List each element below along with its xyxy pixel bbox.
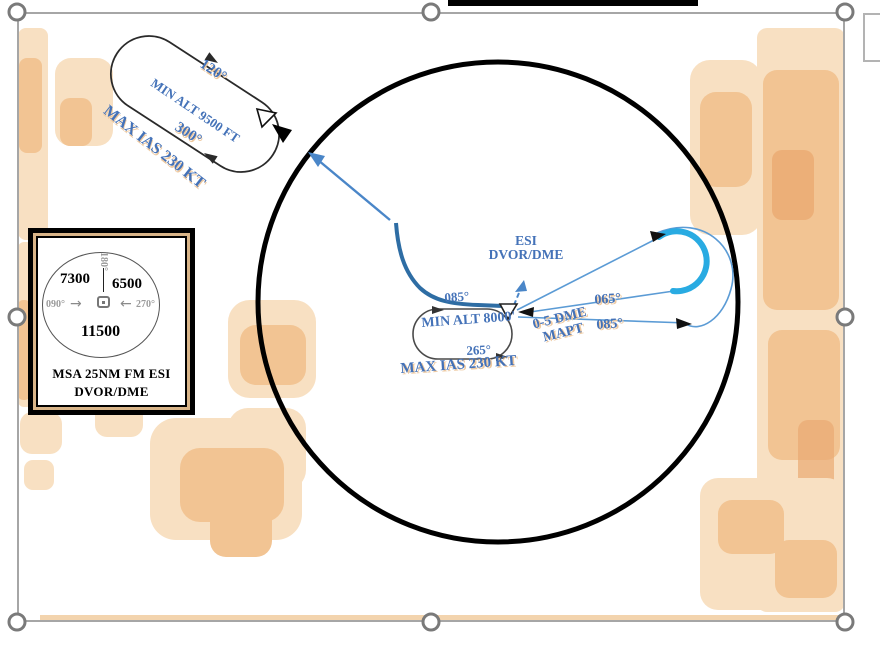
selection-handle-right-middle[interactable] — [836, 308, 855, 327]
msa-inner-frame: 180° 7300 6500 090° → ← 270° 11500 MSA 2… — [36, 236, 187, 407]
approach-course-label: 085° — [444, 289, 470, 304]
missed-approach-path — [308, 152, 503, 306]
selection-handle-top-right[interactable] — [836, 3, 855, 22]
msa-dme-symbol-icon — [97, 296, 110, 308]
fix-name-label: ESI DVOR/DME — [482, 234, 570, 262]
msa-bearing-left: 090° — [46, 299, 65, 310]
msa-sector-nw-altitude: 7300 — [60, 271, 90, 288]
top-edge-bar — [448, 0, 698, 6]
teardrop-turn-highlight — [659, 231, 707, 291]
fix-name-line1: ESI — [482, 234, 570, 248]
msa-bearing-right: 270° — [136, 299, 155, 310]
msa-caption-line2: DVOR/DME — [38, 384, 185, 400]
teardrop-outbound-label: 065° — [594, 292, 622, 309]
msa-caption-line1: MSA 25NM FM ESI — [38, 366, 185, 382]
msa-sector-divider — [103, 268, 104, 292]
approach-chart-canvas: 120° MIN ALT 9500 FT 300° MAX IAS 230 KT… — [0, 0, 882, 651]
text-frame-bracket-icon — [863, 13, 880, 62]
fix-callout-arrow — [514, 280, 527, 305]
msa-sector-s-altitude: 11500 — [81, 323, 120, 341]
selection-handle-top-left[interactable] — [8, 3, 27, 22]
selection-handle-left-middle[interactable] — [8, 308, 27, 327]
fix-name-line2: DVOR/DME — [482, 248, 570, 262]
msa-right-arrow-icon: ← — [120, 299, 132, 309]
teardrop-inbound-label: 085° — [596, 317, 624, 334]
msa-sector-ne-altitude: 6500 — [112, 276, 142, 293]
msa-box: 180° 7300 6500 090° → ← 270° 11500 MSA 2… — [28, 228, 195, 415]
selection-handle-bottom-middle[interactable] — [422, 613, 441, 632]
selection-handle-top-middle[interactable] — [422, 3, 441, 22]
hold-nw-fix-triangle-icon — [257, 109, 276, 127]
msa-left-arrow-icon: → — [70, 299, 82, 309]
selection-handle-bottom-left[interactable] — [8, 613, 27, 632]
selection-handle-bottom-right[interactable] — [836, 613, 855, 632]
procedure-ring — [258, 62, 738, 542]
teardrop-low-arrow-icon — [676, 318, 692, 329]
hold-center-inbound-arrow-icon — [432, 306, 444, 314]
missed-approach-arrowhead-icon — [272, 124, 292, 143]
